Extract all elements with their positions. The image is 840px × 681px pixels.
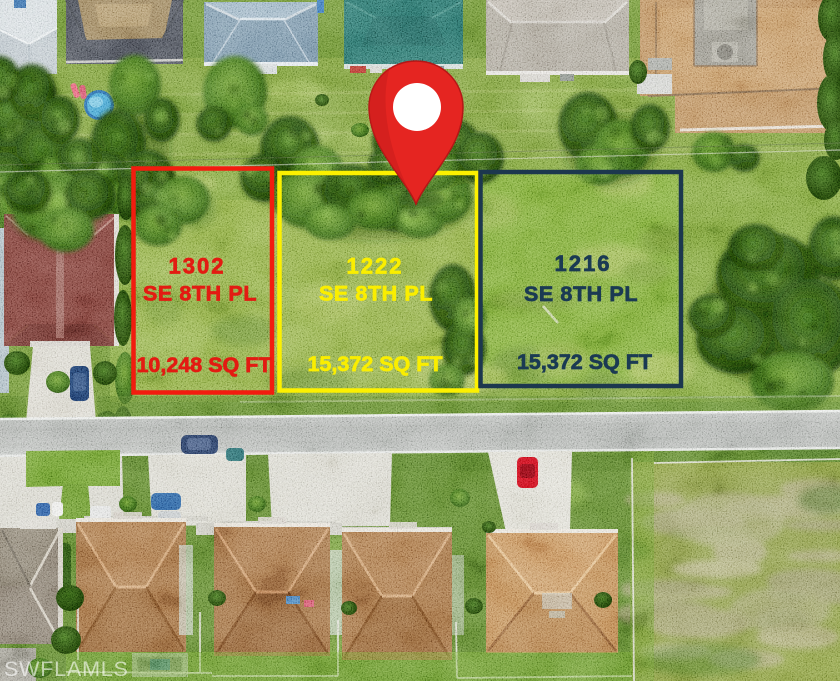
- svg-text:SWFLAMLS: SWFLAMLS: [4, 657, 129, 681]
- svg-text:15,372 SQ FT: 15,372 SQ FT: [307, 352, 442, 376]
- svg-text:15,372 SQ FT: 15,372 SQ FT: [517, 350, 652, 374]
- svg-text:SE 8TH PL: SE 8TH PL: [143, 282, 257, 306]
- svg-text:1222: 1222: [347, 254, 404, 279]
- svg-text:1302: 1302: [169, 254, 226, 279]
- svg-text:SE 8TH PL: SE 8TH PL: [524, 282, 638, 306]
- svg-text:SE 8TH PL: SE 8TH PL: [319, 282, 433, 306]
- svg-text:10,248 SQ FT: 10,248 SQ FT: [136, 353, 271, 377]
- svg-text:1216: 1216: [555, 251, 612, 276]
